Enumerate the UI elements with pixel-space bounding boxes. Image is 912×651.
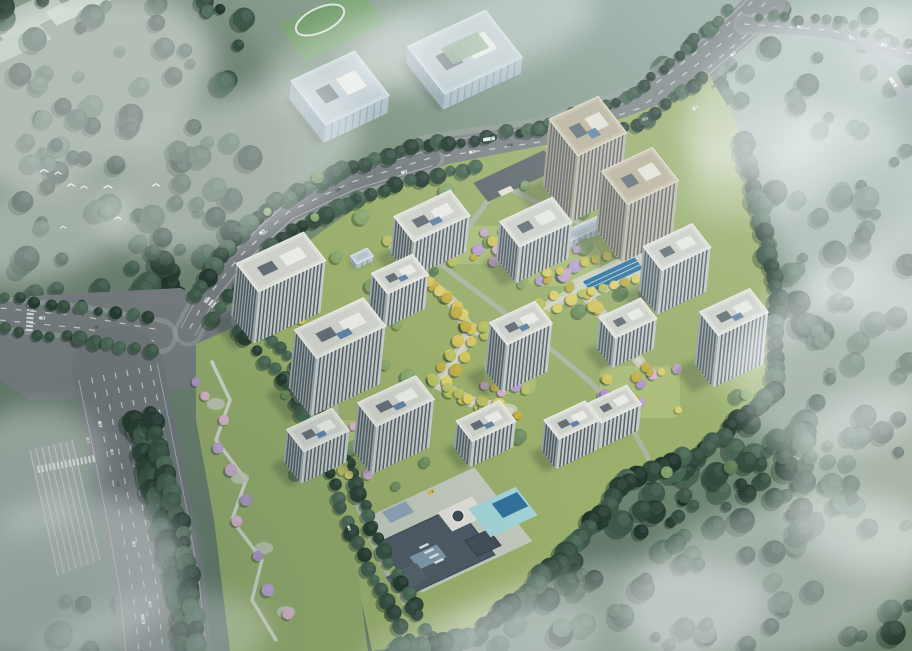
- aerial-site-render: [0, 0, 912, 651]
- render-canvas: [0, 0, 912, 651]
- color-grade-overlay: [0, 0, 912, 651]
